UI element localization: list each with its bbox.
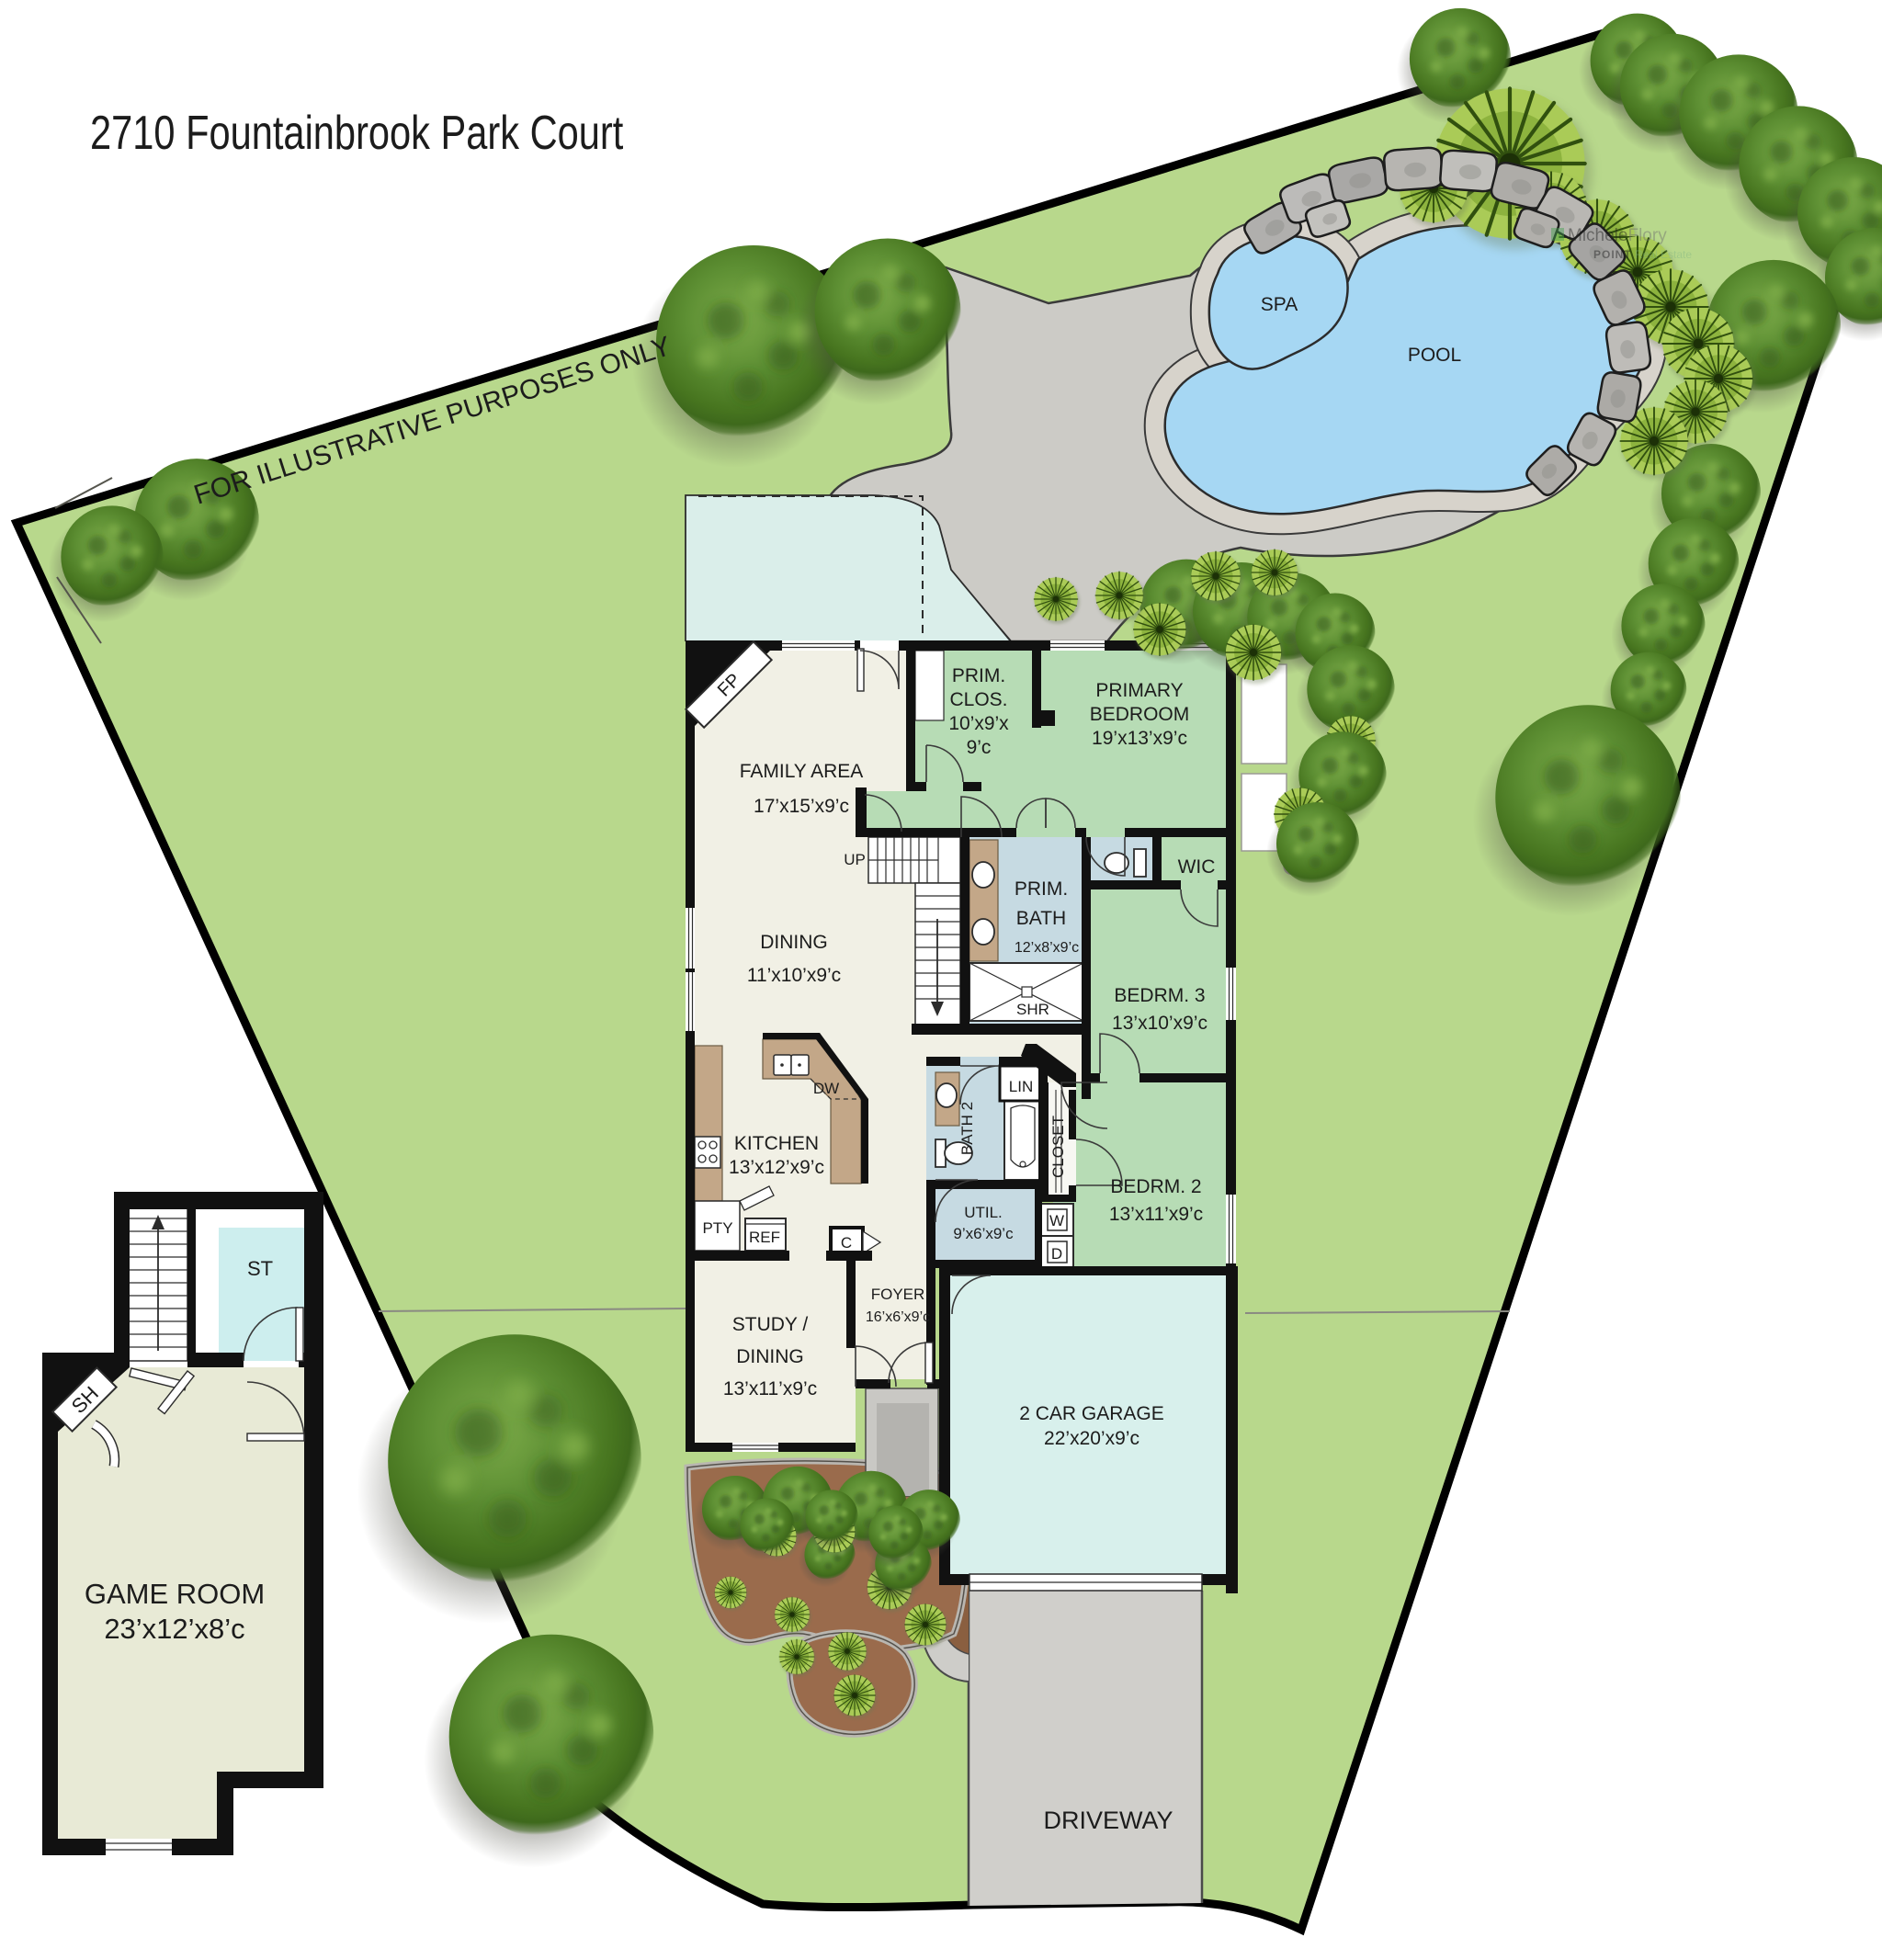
svg-text:10’x9’x: 10’x9’x <box>948 713 1009 734</box>
svg-text:POOL: POOL <box>1408 345 1461 366</box>
svg-text:D: D <box>1051 1245 1062 1263</box>
svg-text:SPA: SPA <box>1261 294 1298 315</box>
svg-text:CLOS.: CLOS. <box>949 689 1007 710</box>
svg-text:W: W <box>1049 1212 1064 1229</box>
svg-text:11’x10’x9’c: 11’x10’x9’c <box>747 965 841 986</box>
svg-text:C: C <box>841 1234 852 1252</box>
svg-text:GAME ROOM: GAME ROOM <box>85 1578 265 1610</box>
svg-text:CLOSET: CLOSET <box>1049 1116 1067 1178</box>
svg-text:12’x8’x9’c: 12’x8’x9’c <box>1015 940 1079 956</box>
svg-text:13’x10’x9’c: 13’x10’x9’c <box>1112 1013 1207 1034</box>
svg-text:PRIM.: PRIM. <box>1015 878 1068 900</box>
svg-text:DW: DW <box>813 1080 839 1097</box>
svg-text:SHR: SHR <box>1016 1001 1049 1018</box>
svg-text:LIN: LIN <box>1009 1078 1033 1095</box>
svg-text:FAMILY AREA: FAMILY AREA <box>740 761 864 782</box>
svg-text:ST: ST <box>247 1257 273 1280</box>
svg-text:BATH: BATH <box>1016 908 1066 929</box>
svg-text:13’x11’x9’c: 13’x11’x9’c <box>1109 1204 1203 1225</box>
svg-text:19’x13’x9’c: 19’x13’x9’c <box>1092 728 1187 749</box>
svg-text:UP: UP <box>844 851 866 868</box>
svg-text:WIC: WIC <box>1178 856 1216 878</box>
svg-text:9’c: 9’c <box>967 737 992 758</box>
svg-text:2710 Fountainbrook Park Court: 2710 Fountainbrook Park Court <box>90 106 623 160</box>
svg-text:POINT Real Estate: POINT Real Estate <box>1593 248 1692 261</box>
svg-text:BEDROOM: BEDROOM <box>1090 704 1190 725</box>
svg-text:PTY: PTY <box>702 1219 732 1237</box>
svg-text:STUDY /: STUDY / <box>732 1314 809 1335</box>
svg-text:KITCHEN: KITCHEN <box>734 1133 819 1154</box>
svg-text:13’x12’x9’c: 13’x12’x9’c <box>729 1157 824 1178</box>
svg-text:DINING: DINING <box>760 932 828 953</box>
svg-text:BEDRM. 2: BEDRM. 2 <box>1110 1176 1201 1197</box>
svg-text:DRIVEWAY: DRIVEWAY <box>1043 1807 1173 1834</box>
svg-text:PRIM.: PRIM. <box>952 665 1005 686</box>
svg-text:BEDRM. 3: BEDRM. 3 <box>1114 985 1205 1006</box>
svg-text:MicheleFlory: MicheleFlory <box>1568 226 1667 245</box>
svg-text:23’x12’x8’c: 23’x12’x8’c <box>104 1613 244 1645</box>
svg-text:2 CAR GARAGE: 2 CAR GARAGE <box>1019 1403 1164 1424</box>
svg-text:UTIL.: UTIL. <box>964 1204 1003 1221</box>
svg-text:PRIMARY: PRIMARY <box>1095 680 1183 701</box>
svg-text:BATH 2: BATH 2 <box>958 1102 976 1155</box>
svg-text:FOYER: FOYER <box>871 1286 925 1303</box>
svg-text:22’x20’x9’c: 22’x20’x9’c <box>1044 1428 1139 1449</box>
svg-text:REF: REF <box>749 1229 780 1246</box>
svg-text:17’x15’x9’c: 17’x15’x9’c <box>754 796 849 817</box>
svg-text:DINING: DINING <box>736 1346 804 1367</box>
svg-text:16’x6’x9’c: 16’x6’x9’c <box>866 1309 930 1325</box>
svg-text:9’x6’x9’c: 9’x6’x9’c <box>953 1225 1014 1242</box>
svg-text:13’x11’x9’c: 13’x11’x9’c <box>723 1378 817 1399</box>
